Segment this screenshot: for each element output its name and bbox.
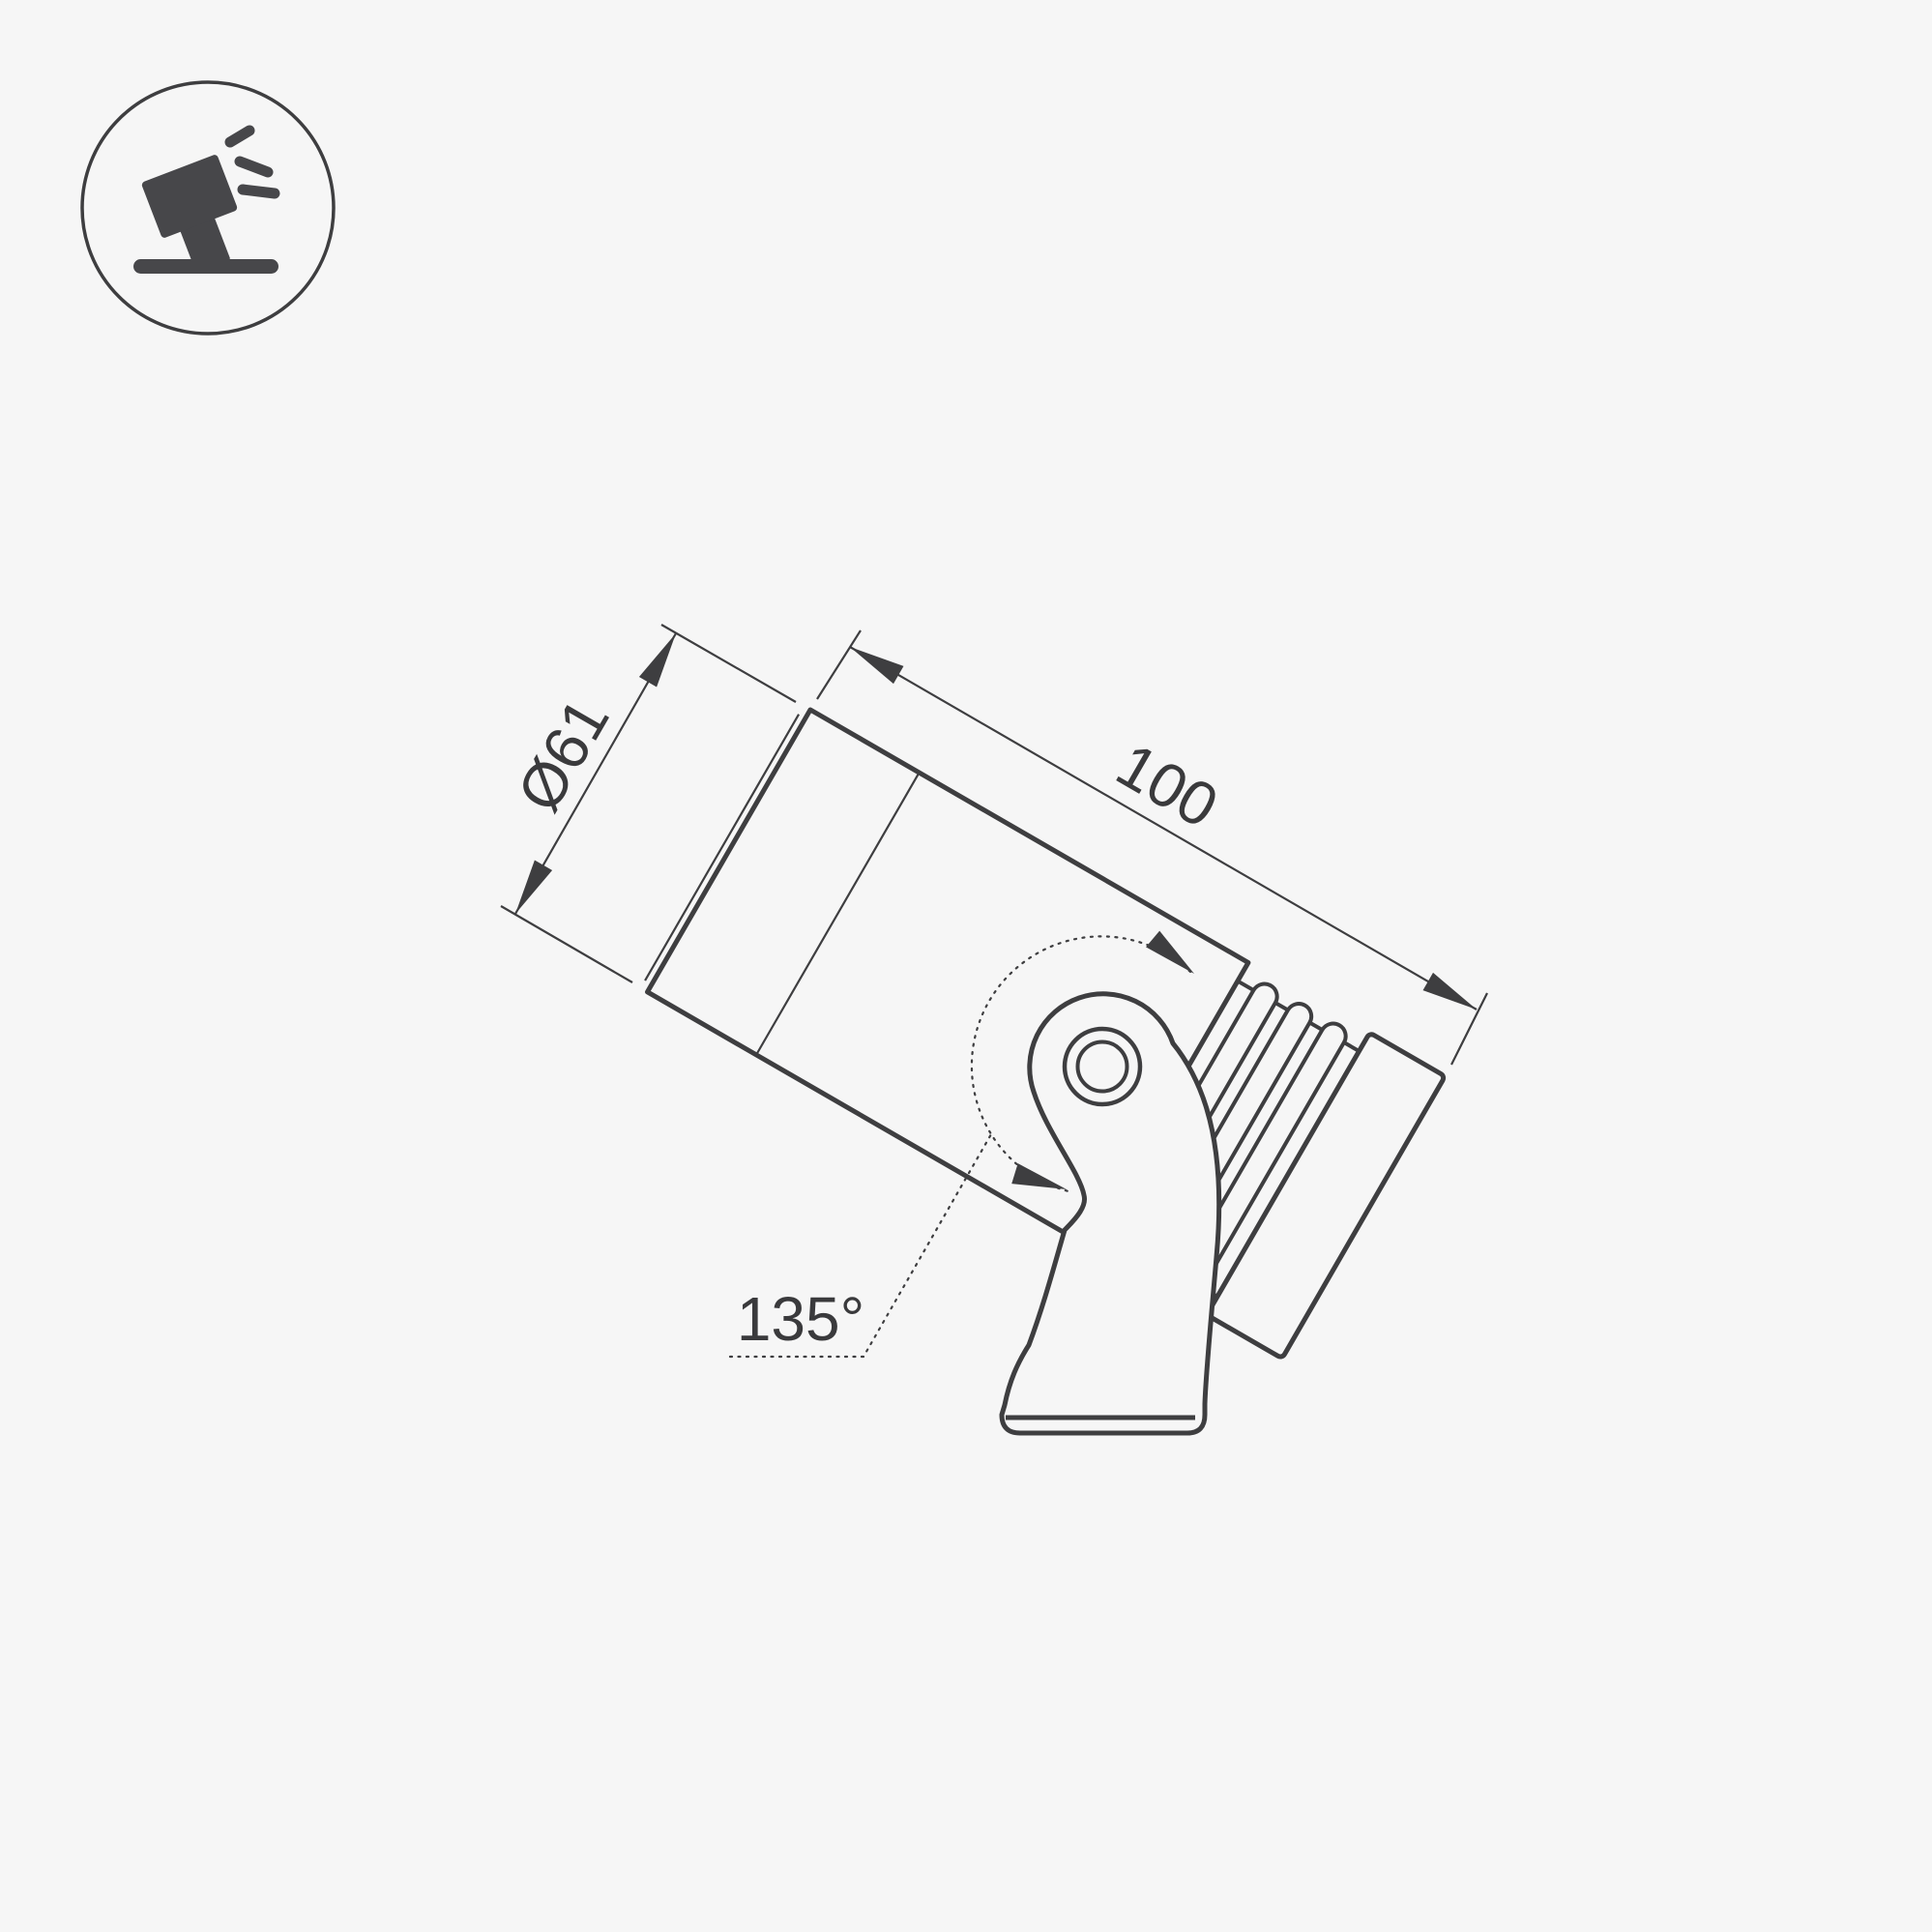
page: Ø61 100 135°	[0, 0, 1932, 1932]
icon-ground-bar	[133, 259, 278, 274]
spotlight-dimension-drawing: Ø61 100 135°	[0, 0, 1932, 1932]
rotation-angle-label: 135°	[737, 1284, 864, 1354]
pivot-screw-inner-ring	[1078, 1042, 1127, 1092]
